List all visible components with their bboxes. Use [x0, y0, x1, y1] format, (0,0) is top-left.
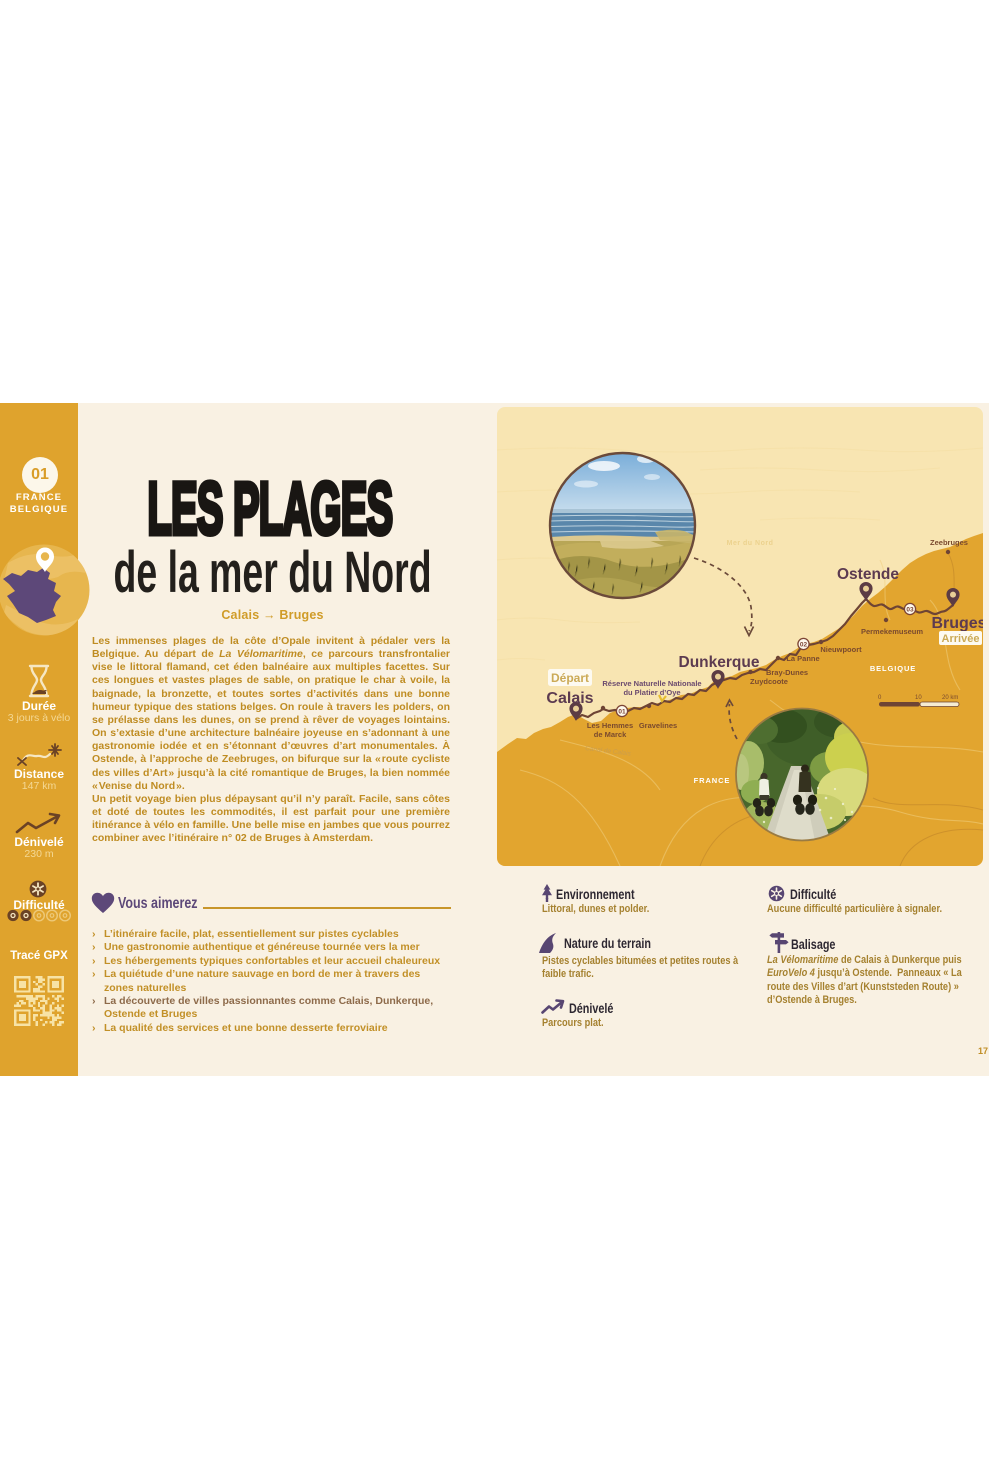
svg-text:Permekemuseum: Permekemuseum [861, 627, 923, 636]
svg-text:FRANCE: FRANCE [694, 776, 731, 785]
svg-text:10: 10 [915, 695, 922, 701]
svg-text:du Platier d’Oye: du Platier d’Oye [623, 688, 680, 697]
svg-text:03: 03 [906, 606, 914, 613]
svg-text:La Panne: La Panne [786, 654, 819, 663]
svg-text:BELGIQUE: BELGIQUE [870, 664, 916, 673]
svg-text:Zeebruges: Zeebruges [930, 538, 968, 547]
svg-text:Gravelines: Gravelines [639, 721, 677, 730]
svg-text:Mer du Nord: Mer du Nord [727, 540, 774, 547]
svg-text:Les Hemmes: Les Hemmes [587, 721, 633, 730]
svg-text:02: 02 [800, 641, 808, 648]
svg-text:Nieuwpoort: Nieuwpoort [820, 645, 862, 654]
svg-text:01: 01 [618, 708, 626, 715]
svg-text:Arrivée: Arrivée [942, 633, 980, 645]
svg-text:Bray-Dunes: Bray-Dunes [766, 668, 808, 677]
svg-text:20 km: 20 km [942, 695, 958, 701]
svg-text:Réserve Naturelle Nationale: Réserve Naturelle Nationale [602, 679, 701, 688]
svg-text:Départ: Départ [551, 671, 589, 685]
svg-text:Dunkerque: Dunkerque [679, 654, 760, 671]
svg-text:de Marck: de Marck [594, 730, 627, 739]
svg-text:Zuydcoote: Zuydcoote [750, 677, 788, 686]
svg-text:Bruges: Bruges [931, 615, 983, 632]
svg-text:Calais: Calais [546, 690, 593, 707]
svg-text:Ostende: Ostende [837, 566, 899, 583]
